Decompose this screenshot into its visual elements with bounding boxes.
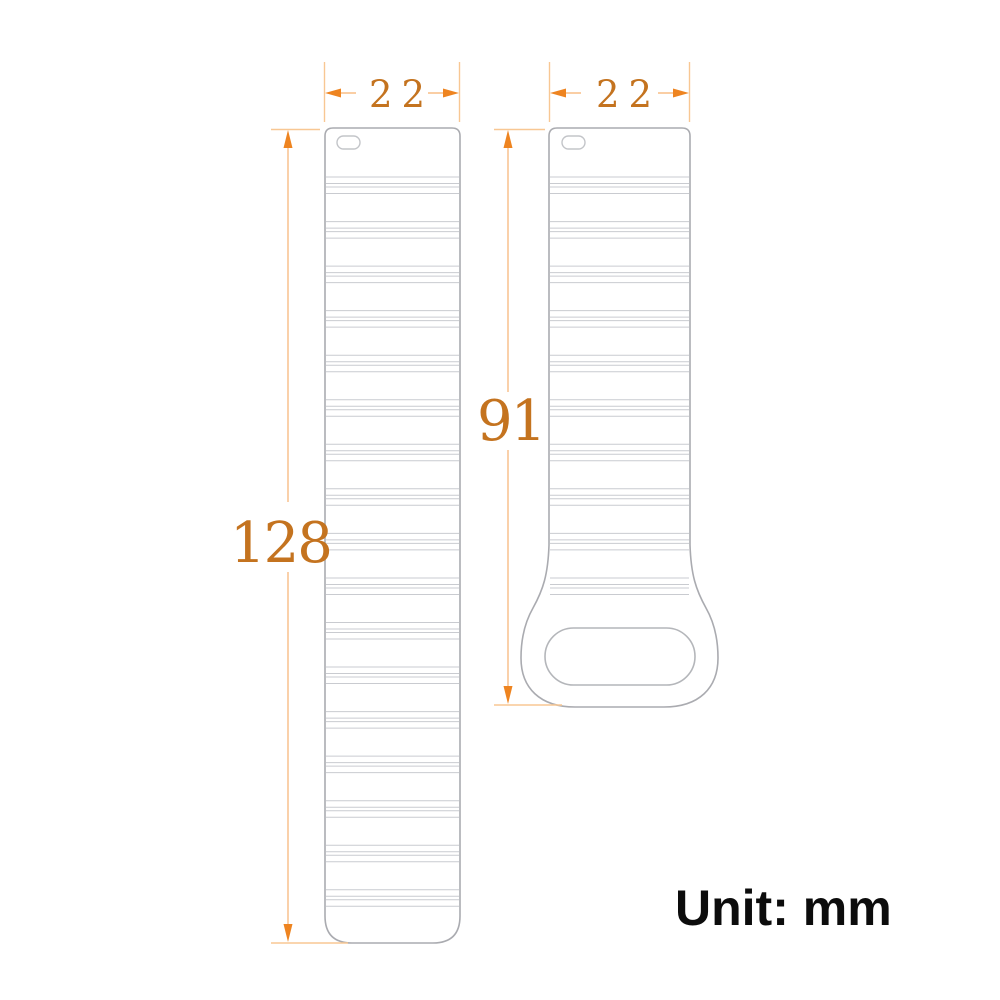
arrow-left-icon <box>550 89 566 98</box>
arrow-right-icon <box>673 89 689 98</box>
arrow-down-icon <box>504 686 513 704</box>
arrow-left-icon <box>325 89 341 98</box>
strap-dimension-diagram: 22 22 128 91 Unit: mm <box>0 0 1000 1000</box>
arrow-right-icon <box>443 89 459 98</box>
left-length-value: 128 <box>230 511 331 576</box>
right-strap-ridges <box>550 177 689 595</box>
right-strap <box>521 128 718 707</box>
unit-note: Unit: mm <box>675 880 892 936</box>
arrow-down-icon <box>284 924 293 942</box>
right-strap-pin-slot-icon <box>562 136 585 149</box>
right-width-value: 22 <box>596 73 661 116</box>
left-width-dimension: 22 <box>325 62 460 122</box>
right-strap-outline <box>521 128 718 707</box>
right-length-value: 91 <box>477 389 544 454</box>
left-length-dimension: 128 <box>230 130 348 944</box>
arrow-up-icon <box>504 130 513 148</box>
left-strap-pin-slot-icon <box>337 136 360 149</box>
left-strap <box>325 128 460 943</box>
left-strap-ridges <box>326 177 459 906</box>
right-width-dimension: 22 <box>550 62 690 122</box>
arrow-up-icon <box>284 130 293 148</box>
left-strap-outline <box>325 128 460 943</box>
left-width-value: 22 <box>369 73 434 116</box>
right-strap-buckle-hole <box>545 628 695 685</box>
